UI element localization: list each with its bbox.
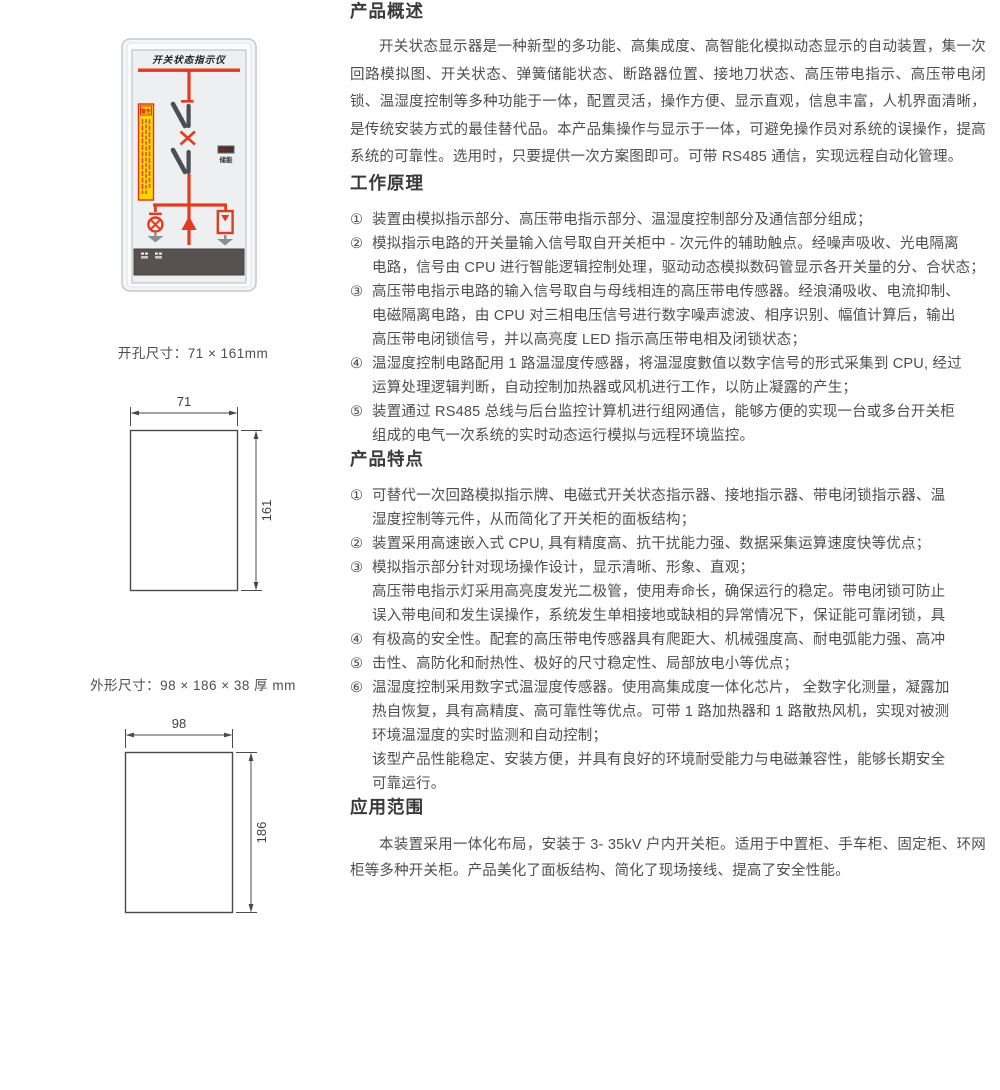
arrowhead xyxy=(249,904,254,913)
overall-height-value: 186 xyxy=(254,822,269,844)
principle-line: 高压带电闭锁信号，并以高亮度 LED 指示高压带电相及闭锁状态； xyxy=(350,328,986,352)
line-text: 电路，信号由 CPU 进行智能逻辑控制处理，驱动动态模拟数码管显示各开关量的分、… xyxy=(372,256,985,280)
principle-heading: 工作原理 xyxy=(350,172,986,194)
line-text: 高压带电闭锁信号，并以高亮度 LED 指示高压带电相及闭锁状态； xyxy=(372,328,806,352)
line-marker xyxy=(350,256,372,280)
line-marker xyxy=(350,304,372,328)
principle-line: ⑤装置通过 RS485 总线与后台监控计算机进行组网通信，能够方便的实现一台或多… xyxy=(350,400,986,424)
application-paragraph: 本装置采用一体化布局，安装于 3- 35kV 户内开关柜。适用于中置柜、手车柜、… xyxy=(350,832,986,884)
line-marker: ① xyxy=(350,208,372,232)
feature-line: 环境温湿度的实时监测和自动控制； xyxy=(350,724,986,748)
overview-heading: 产品概述 xyxy=(350,0,986,22)
line-marker xyxy=(350,724,372,748)
cutout-size-caption: 开孔尺寸：71 × 161mm xyxy=(93,342,293,362)
line-marker: ③ xyxy=(350,280,372,304)
line-text: 可靠运行。 xyxy=(372,772,446,796)
product-photo: 开关状态指示仪 xyxy=(121,38,257,294)
line-marker: ⑥ xyxy=(350,676,372,700)
overall-dimension-drawing: 98 186 xyxy=(105,715,305,921)
line-marker: ④ xyxy=(350,628,372,652)
line-text: 运算处理逻辑判断，自动控制加热器或风机进行工作，以防止凝露的产生； xyxy=(372,376,857,400)
line-marker xyxy=(350,328,372,352)
line-text: 装置通过 RS485 总线与后台监控计算机进行组网通信，能够方便的实现一台或多台… xyxy=(372,400,955,424)
line-marker: ① xyxy=(350,484,372,508)
line-marker: ⑤ xyxy=(350,652,372,676)
width-dimension xyxy=(131,407,238,426)
line-text: 温湿度控制电路配用 1 路温湿度传感器，将温湿度數值以数字信号的形式采集到 CP… xyxy=(372,352,962,376)
feature-line: ⑤击性、高防化和耐热性、极好的尺寸稳定性、局部放电小等优点； xyxy=(350,652,986,676)
line-text: 湿度控制等元件，从而简化了开关柜的面板结构； xyxy=(372,508,695,532)
application-heading: 应用范围 xyxy=(350,796,986,818)
arrowhead xyxy=(131,411,140,416)
principle-line: 运算处理逻辑判断，自动控制加热器或风机进行工作，以防止凝露的产生； xyxy=(350,376,986,400)
feature-line: ④有极高的安全性。配套的高压带电传感器具有爬距大、机械强度高、耐电弧能力强、高冲 xyxy=(350,628,986,652)
overall-size-caption: 外形尺寸：98 × 186 × 38 厚 mm xyxy=(73,674,313,694)
principle-line: ④温湿度控制电路配用 1 路温湿度传感器，将温湿度數值以数字信号的形式采集到 C… xyxy=(350,352,986,376)
line-text: 模拟指示电路的开关量输入信号取自开关柜中 - 次元件的辅助触点。经噪声吸收、光电… xyxy=(372,232,959,256)
contact-tick xyxy=(181,100,194,103)
warning-label: 警告 xyxy=(139,104,154,200)
feeder-line-bottom xyxy=(187,174,190,206)
arrowhead xyxy=(254,582,259,591)
arrowhead xyxy=(249,753,254,762)
energy-storage-label: 储能 xyxy=(219,155,234,164)
principle-line: ②模拟指示电路的开关量输入信号取自开关柜中 - 次元件的辅助触点。经噪声吸收、光… xyxy=(350,232,986,256)
line-text: 环境温湿度的实时监测和自动控制； xyxy=(372,724,607,748)
overall-rectangle xyxy=(126,753,233,913)
line-marker xyxy=(350,604,372,628)
overall-width-value: 98 xyxy=(172,716,186,731)
principle-line: 电磁隔离电路，由 CPU 对三相电压信号进行数字噪声滤波、相序识别、幅值计算后，… xyxy=(350,304,986,328)
line-marker xyxy=(350,376,372,400)
feature-line: ②装置采用高速嵌入式 CPU, 具有精度高、抗干扰能力强、数据采集运算速度快等优… xyxy=(350,532,986,556)
line-marker xyxy=(350,424,372,448)
feature-line: 可靠运行。 xyxy=(350,772,986,796)
line-marker: ② xyxy=(350,532,372,556)
feature-line: 该型产品性能稳定、安装方便，并具有良好的环境耐受能力与电磁兼容性，能够长期安全 xyxy=(350,748,986,772)
content-column: 产品概述 开关状态显示器是一种新型的多功能、高集成度、高智能化模拟动态显示的自动… xyxy=(350,0,986,884)
line-marker: ⑤ xyxy=(350,400,372,424)
line-marker xyxy=(350,700,372,724)
cutout-rectangle xyxy=(131,431,238,591)
arrowhead xyxy=(224,733,233,738)
arrowhead xyxy=(254,431,259,440)
features-list: ①可替代一次回路模拟指示牌、电磁式开关状态指示器、接地指示器、带电闭锁指示器、温… xyxy=(350,484,986,796)
feeder-line-top xyxy=(187,71,190,100)
line-text: 温湿度控制采用数字式温湿度传感器。使用高集成度一体化芯片， 全数字化测量，凝露加 xyxy=(372,676,950,700)
line-text: 热自恢复，具有高精度、高可靠性等优点。可带 1 路加热器和 1 路散热风机，实现… xyxy=(372,700,949,724)
feature-line: 湿度控制等元件，从而简化了开关柜的面板结构； xyxy=(350,508,986,532)
line-text: 装置采用高速嵌入式 CPU, 具有精度高、抗干扰能力强、数据采集运算速度快等优点… xyxy=(372,532,930,556)
line-text: 高压带电指示灯采用高亮度发光二极管，使用寿命长，确保运行的稳定。带电闭锁可防止 xyxy=(372,580,945,604)
principle-line: 电路，信号由 CPU 进行智能逻辑控制处理，驱动动态模拟数码管显示各开关量的分、… xyxy=(350,256,986,280)
principle-line: ③高压带电指示电路的输入信号取自与母线相连的高压带电传感器。经浪涌吸收、电流抑制… xyxy=(350,280,986,304)
cutout-dimension-drawing: 71 161 xyxy=(110,393,310,599)
feature-line: 高压带电指示灯采用高亮度发光二极管，使用寿命长，确保运行的稳定。带电闭锁可防止 xyxy=(350,580,986,604)
arrowhead xyxy=(126,733,135,738)
line-text: 电磁隔离电路，由 CPU 对三相电压信号进行数字噪声滤波、相序识别、幅值计算后，… xyxy=(372,304,956,328)
arrowhead xyxy=(229,411,238,416)
line-text: 模拟指示部分针对现场操作设计，显示清晰、形象、直观； xyxy=(372,556,754,580)
line-text: 可替代一次回路模拟指示牌、电磁式开关状态指示器、接地指示器、带电闭锁指示器、温 xyxy=(372,484,945,508)
device-title: 开关状态指示仪 xyxy=(152,54,226,66)
line-text: 误入带电间和发生误操作，系统发生单相接地或缺相的异常情况下，保证能可靠闭锁，具 xyxy=(372,604,945,628)
line-text: 组成的电气一次系统的实时动态运行模拟与远程环境监控。 xyxy=(372,424,754,448)
line-text: 高压带电指示电路的输入信号取自与母线相连的高压带电传感器。经浪涌吸收、电流抑制、 xyxy=(372,280,960,304)
line-text: 该型产品性能稳定、安装方便，并具有良好的环境耐受能力与电磁兼容性，能够长期安全 xyxy=(372,748,945,772)
line-marker: ③ xyxy=(350,556,372,580)
feature-line: ①可替代一次回路模拟指示牌、电磁式开关状态指示器、接地指示器、带电闭锁指示器、温 xyxy=(350,484,986,508)
line-text: 击性、高防化和耐热性、极好的尺寸稳定性、局部放电小等优点； xyxy=(372,652,798,676)
overview-paragraph: 开关状态显示器是一种新型的多功能、高集成度、高智能化模拟动态显示的自动装置，集一… xyxy=(350,34,986,172)
width-dimension xyxy=(126,729,233,748)
bottom-control-strip xyxy=(134,249,244,275)
features-heading: 产品特点 xyxy=(350,448,986,470)
feature-line: 热自恢复，具有高精度、高可靠性等优点。可带 1 路加热器和 1 路散热风机，实现… xyxy=(350,700,986,724)
line-marker: ④ xyxy=(350,352,372,376)
line-marker xyxy=(350,748,372,772)
line-text: 装置由模拟指示部分、高压带电指示部分、温湿度控制部分及通信部分组成； xyxy=(372,208,872,232)
feature-line: 误入带电间和发生误操作，系统发生单相接地或缺相的异常情况下，保证能可靠闭锁，具 xyxy=(350,604,986,628)
principle-list: ①装置由模拟指示部分、高压带电指示部分、温湿度控制部分及通信部分组成； ②模拟指… xyxy=(350,208,986,448)
cutout-height-value: 161 xyxy=(259,500,274,522)
principle-line: 组成的电气一次系统的实时动态运行模拟与远程环境监控。 xyxy=(350,424,986,448)
feature-line: ⑥温湿度控制采用数字式温湿度传感器。使用高集成度一体化芯片， 全数字化测量，凝露… xyxy=(350,676,986,700)
line-text: 有极高的安全性。配套的高压带电传感器具有爬距大、机械强度高、耐电弧能力强、高冲 xyxy=(372,628,945,652)
line-marker: ② xyxy=(350,232,372,256)
feature-line: ③模拟指示部分针对现场操作设计，显示清晰、形象、直观； xyxy=(350,556,986,580)
warning-label-text: 警告 xyxy=(140,108,151,115)
principle-line: ①装置由模拟指示部分、高压带电指示部分、温湿度控制部分及通信部分组成； xyxy=(350,208,986,232)
line-marker xyxy=(350,508,372,532)
line-marker xyxy=(350,772,372,796)
line-marker xyxy=(350,580,372,604)
cutout-width-value: 71 xyxy=(177,394,191,409)
